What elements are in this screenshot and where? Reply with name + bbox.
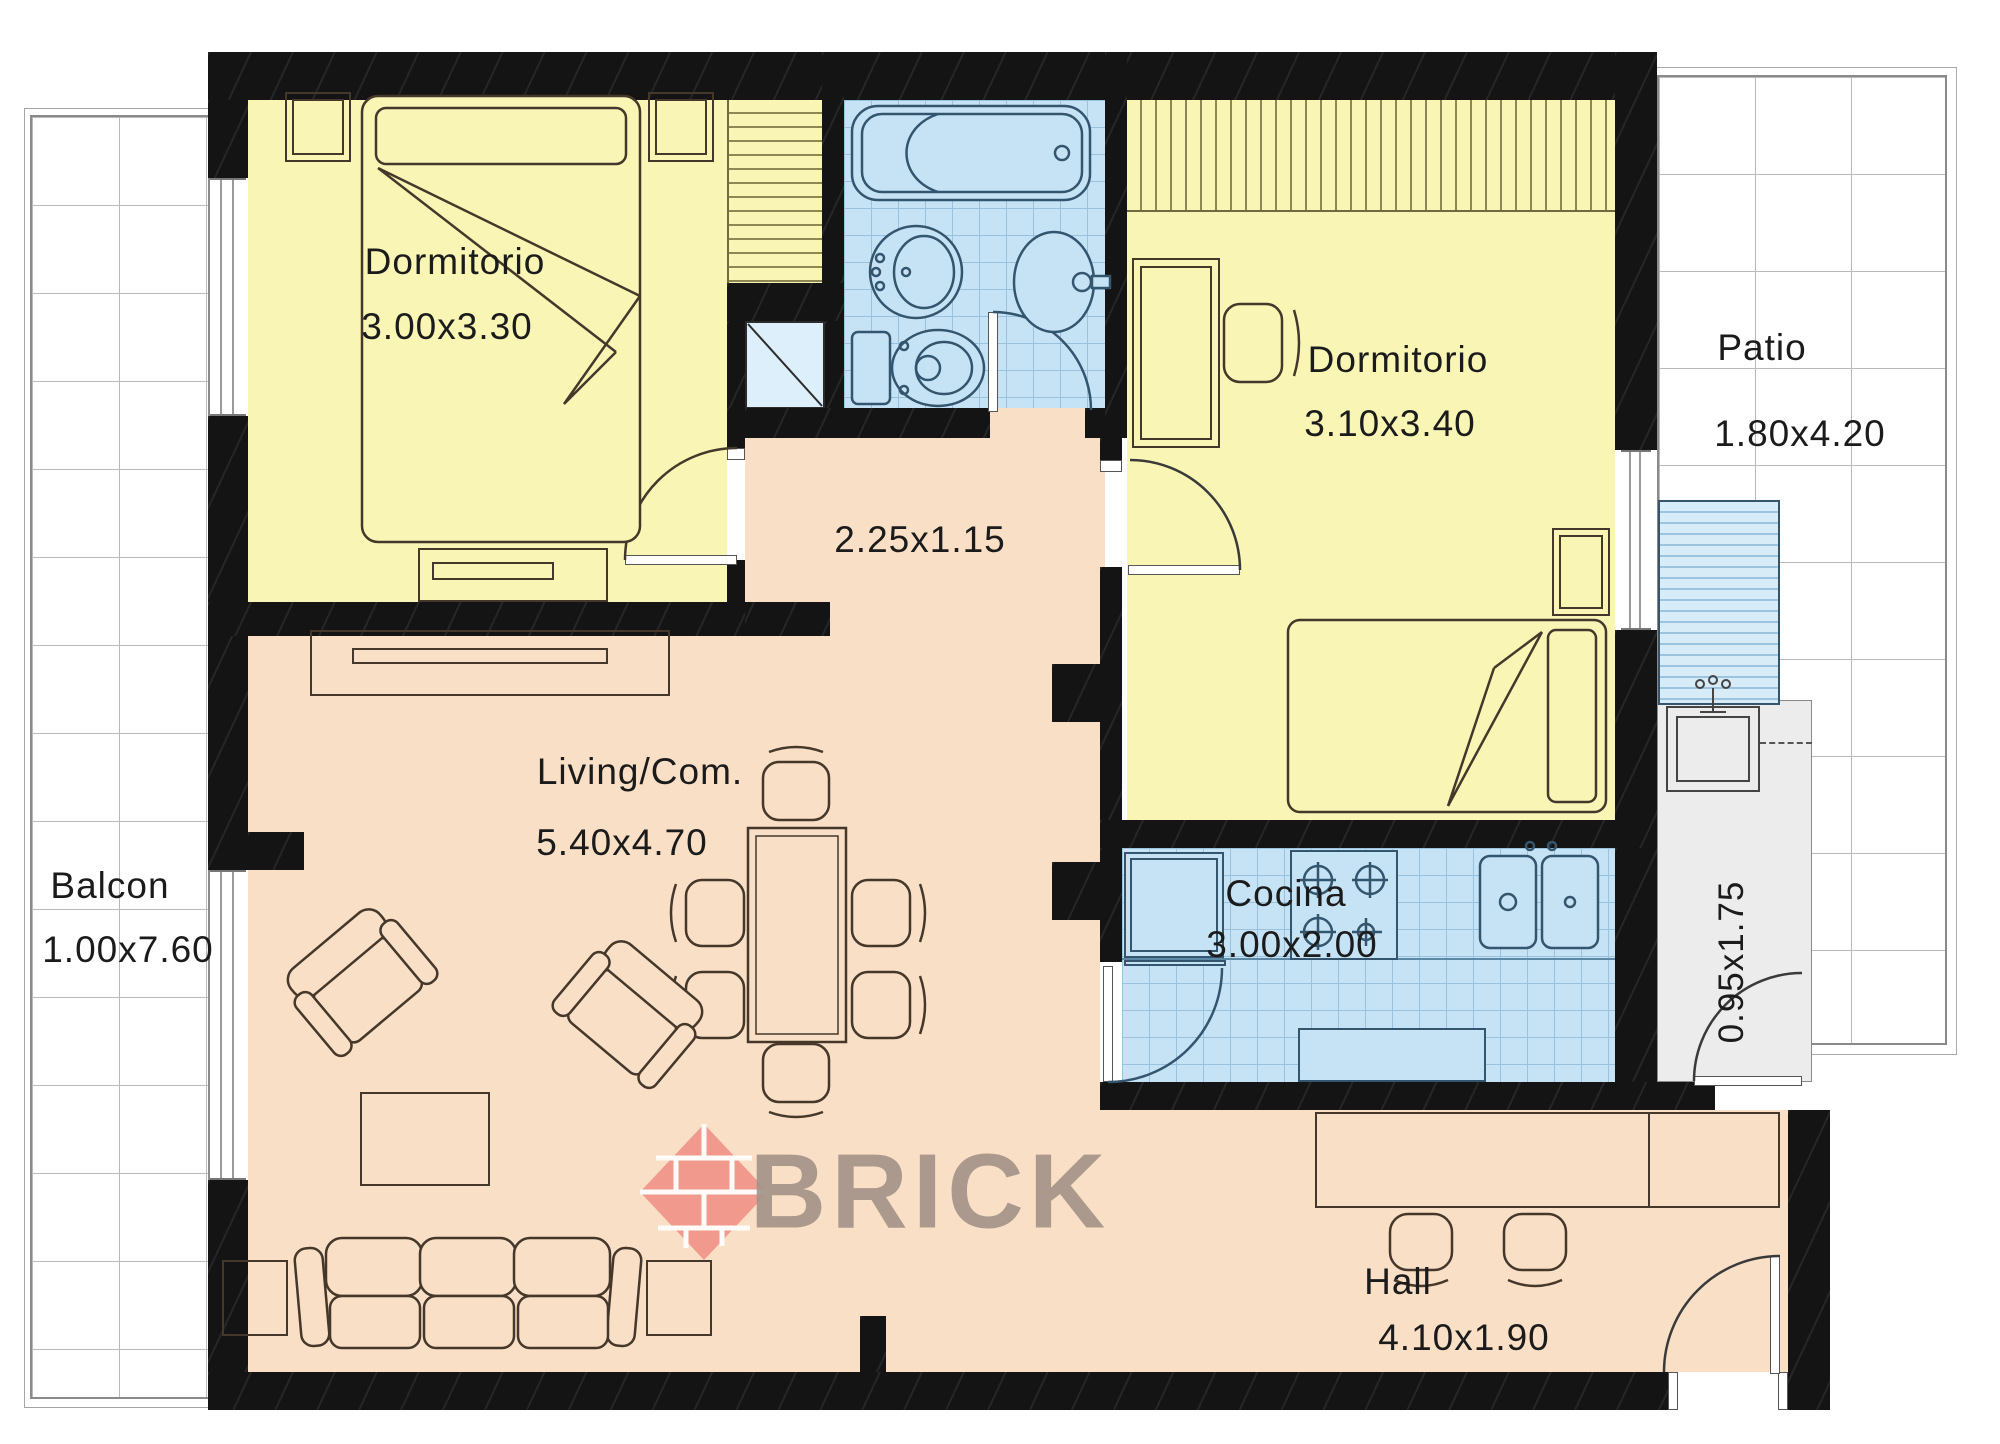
living-label: Living/Com. — [537, 751, 743, 793]
hall-desk-divider — [1648, 1112, 1650, 1208]
bedroom1-window — [210, 178, 246, 416]
living-floor — [248, 602, 1100, 1372]
bathroom-door-leaf — [988, 312, 998, 412]
kitchen-label: Cocina — [1225, 873, 1346, 915]
bedroom1-closet-strip — [727, 100, 822, 283]
entry-door-jamb-left — [1668, 1372, 1678, 1410]
bathroom-floor — [844, 100, 1105, 408]
wall-bottom-a — [208, 1372, 1668, 1410]
wall-kitchen-bottom — [1100, 1082, 1715, 1110]
wall-bath-bottom-a — [745, 408, 990, 438]
laundry-dims: 0.95x1.75 — [1712, 881, 1752, 1044]
wall-left-pier — [248, 832, 304, 870]
wall-kitchen-pier-1 — [1052, 664, 1100, 722]
bedroom2-door-jamb — [1100, 460, 1122, 472]
wall-top — [208, 52, 1657, 100]
hall-label: Hall — [1364, 1261, 1432, 1303]
entry-door-leaf — [1770, 1256, 1780, 1374]
floor-plan: BRICK Dormitorio 3.00x3.30 Dormitorio 3.… — [0, 0, 2000, 1444]
washing-machine — [1658, 500, 1780, 705]
nightstand-bedroom2 — [1552, 528, 1610, 616]
bedroom2-window — [1621, 450, 1651, 630]
hall-dims: 4.10x1.90 — [1378, 1317, 1550, 1359]
wall-bedroom2-left-stub — [1100, 438, 1122, 462]
kitchen-door-leaf — [1103, 966, 1113, 1082]
bedroom1-floor — [248, 100, 727, 602]
brick-logo-text: BRICK — [750, 1132, 1111, 1253]
living-balcony-window — [210, 870, 246, 1180]
balcony-dims: 1.00x7.60 — [42, 929, 214, 971]
wall-left-mid — [208, 416, 248, 870]
wall-closet-square-left — [727, 321, 745, 409]
hall-desk — [1315, 1112, 1780, 1208]
entry-door-jamb-right — [1778, 1372, 1788, 1410]
wall-under-closet-strip — [727, 283, 844, 321]
bedroom2-door-leaf — [1128, 565, 1240, 575]
wall-bedroom2-left — [1100, 567, 1122, 848]
nightstand-left — [285, 92, 351, 162]
bedroom1-door-jamb — [727, 448, 745, 460]
bedroom2-label: Dormitorio — [1308, 339, 1489, 381]
living-dims: 5.40x4.70 — [536, 822, 708, 864]
wall-kitchen-left — [1100, 848, 1122, 962]
laundry-door-leaf — [1694, 1076, 1802, 1086]
wall-bedroom2-right-lower — [1615, 630, 1657, 848]
wall-bath-left-upper — [822, 52, 844, 322]
nightstand-right — [648, 92, 714, 162]
bedroom1-label: Dormitorio — [365, 241, 546, 283]
bedroom1-dims: 3.00x3.30 — [361, 306, 533, 348]
laundry-sink-basin — [1676, 716, 1750, 782]
side-table-right — [646, 1260, 712, 1336]
kitchen-lower-counter — [1298, 1028, 1486, 1082]
hallway-dims: 2.25x1.15 — [834, 519, 1006, 561]
wall-kitchen-right — [1615, 848, 1657, 1110]
wall-bedroom2-bottom — [1100, 820, 1657, 848]
wall-closet-square-right — [825, 321, 844, 409]
wall-bath-right — [1105, 52, 1127, 438]
bedroom1-door-leaf — [625, 555, 737, 565]
dresser-drawer — [432, 562, 554, 580]
kitchen-dims: 3.00x2.00 — [1206, 924, 1378, 966]
bedroom2-closet-strip — [1127, 100, 1615, 212]
balcony-area — [30, 115, 210, 1399]
bedroom2-dims: 3.10x3.40 — [1304, 403, 1476, 445]
wall-bedroom2-right-upper — [1615, 52, 1657, 450]
laundry-dashed-line — [1760, 742, 1812, 744]
sideboard-handle — [352, 648, 608, 664]
wall-bottom-pier — [860, 1316, 886, 1372]
desk-inner — [1140, 266, 1212, 440]
coffee-table — [360, 1092, 490, 1186]
wall-kitchen-pier-2 — [1052, 862, 1100, 920]
wall-hall-right — [1788, 1110, 1830, 1410]
wall-left-upper — [208, 100, 248, 178]
patio-label: Patio — [1717, 327, 1806, 369]
side-table-left — [222, 1260, 288, 1336]
patio-dims: 1.80x4.20 — [1714, 413, 1886, 455]
storage-closet-square — [745, 321, 825, 409]
wall-stub-b — [727, 560, 745, 636]
balcony-label: Balcon — [50, 865, 169, 907]
